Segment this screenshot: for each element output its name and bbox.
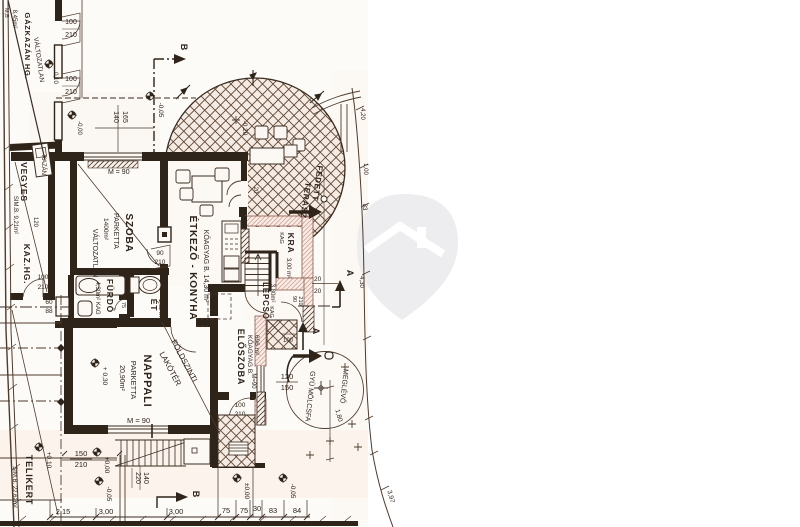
svg-text:150: 150 <box>281 383 294 392</box>
svg-text:+ 0,30: + 0,30 <box>101 367 108 386</box>
svg-text:VEGYES: VEGYES <box>19 162 29 202</box>
svg-text:1400m²: 1400m² <box>102 218 109 241</box>
svg-text:4,20: 4,20 <box>359 108 365 120</box>
svg-text:KAZÁN: KAZÁN <box>40 155 47 175</box>
svg-text:TELIKERT: TELIKERT <box>24 455 34 505</box>
svg-text:90: 90 <box>291 296 297 302</box>
svg-text:-0,20: -0,20 <box>241 121 248 136</box>
svg-text:120: 120 <box>32 217 38 228</box>
svg-text:GÁZKAZÁN HG.: GÁZKAZÁN HG. <box>23 12 32 79</box>
svg-text:100: 100 <box>283 338 294 344</box>
svg-text:±0,00: ±0,00 <box>243 483 250 500</box>
svg-text:PARKETTA: PARKETTA <box>129 361 138 399</box>
svg-text:75: 75 <box>240 506 248 515</box>
svg-text:+0,00: +0,00 <box>103 457 110 474</box>
svg-text:210: 210 <box>297 296 303 305</box>
svg-text:20: 20 <box>252 187 258 194</box>
svg-text:B: B <box>191 491 201 498</box>
svg-text:696 m²: 696 m² <box>253 335 260 356</box>
svg-text:210: 210 <box>65 32 77 39</box>
svg-text:100: 100 <box>235 402 246 409</box>
svg-text:A: A <box>345 270 355 277</box>
svg-text:M = 90: M = 90 <box>108 169 130 176</box>
svg-text:20: 20 <box>314 276 322 283</box>
svg-text:8,45m²: 8,45m² <box>11 10 17 29</box>
svg-text:20: 20 <box>314 288 322 295</box>
svg-text:SIM.B. 22,62m²: SIM.B. 22,62m² <box>11 466 17 508</box>
svg-text:120: 120 <box>281 372 294 381</box>
svg-text:M = 90: M = 90 <box>127 416 150 425</box>
svg-text:75: 75 <box>120 302 126 308</box>
svg-text:ELŐSZOBA: ELŐSZOBA <box>236 329 247 385</box>
svg-text:90: 90 <box>156 250 164 257</box>
svg-text:3,00: 3,00 <box>169 507 184 516</box>
svg-text:210: 210 <box>126 302 132 311</box>
svg-text:M,B: M,B <box>3 8 9 18</box>
svg-text:83: 83 <box>361 204 367 211</box>
svg-text:-0,00: -0,00 <box>76 121 82 135</box>
svg-text:60: 60 <box>45 299 53 306</box>
svg-text:VÁLTOZATLAN: VÁLTOZATLAN <box>91 229 100 278</box>
svg-text:ÉTKEZŐ - KONYHA: ÉTKEZŐ - KONYHA <box>187 216 200 321</box>
svg-text:210: 210 <box>75 460 88 469</box>
svg-text:4,30: 4,30 <box>358 276 364 288</box>
svg-text:SIM.B. 9,21m²: SIM.B. 9,21m² <box>12 196 18 234</box>
svg-text:KŐAGYAG B. 14,30 m²: KŐAGYAG B. 14,30 m² <box>202 230 211 303</box>
svg-text:1,00: 1,00 <box>362 163 368 175</box>
svg-text:A: A <box>311 328 321 335</box>
svg-text:210: 210 <box>65 89 77 96</box>
svg-text:20,90m²: 20,90m² <box>118 365 125 391</box>
svg-text:88: 88 <box>45 308 53 315</box>
svg-text:KAG: KAG <box>268 306 274 318</box>
svg-text:1,62 m²: 1,62 m² <box>157 299 163 319</box>
svg-text:30: 30 <box>253 504 261 513</box>
svg-text:KRA: KRA <box>286 233 296 254</box>
svg-text:2,15: 2,15 <box>56 507 71 516</box>
svg-text:0,10: 0,10 <box>52 72 58 84</box>
svg-text:3,00 m²: 3,00 m² <box>285 258 291 278</box>
svg-text:KAZ.HG.: KAZ.HG. <box>22 244 32 285</box>
svg-text:140: 140 <box>142 472 149 484</box>
svg-text:SZOBA: SZOBA <box>123 214 134 253</box>
svg-text:75: 75 <box>222 506 230 515</box>
svg-text:NAPPALI: NAPPALI <box>141 354 153 407</box>
svg-text:3,80m²: 3,80m² <box>269 284 275 303</box>
svg-text:B: B <box>179 44 189 51</box>
svg-text:PARKETTA: PARKETTA <box>112 213 119 249</box>
svg-text:210: 210 <box>38 284 49 291</box>
svg-text:M=90: M=90 <box>250 373 256 389</box>
svg-text:83: 83 <box>269 506 277 515</box>
svg-text:4,30m² KAG: 4,30m² KAG <box>94 281 100 314</box>
svg-text:KAG: KAG <box>278 232 284 244</box>
svg-text:3,00: 3,00 <box>99 507 114 516</box>
svg-text:165: 165 <box>121 111 128 123</box>
svg-text:84: 84 <box>293 506 301 515</box>
svg-text:-0,05: -0,05 <box>289 484 296 499</box>
svg-text:100: 100 <box>65 76 77 83</box>
svg-text:FÜRDŐ: FÜRDŐ <box>105 279 116 313</box>
svg-text:-0,05: -0,05 <box>105 487 112 502</box>
svg-text:-0,05: -0,05 <box>157 103 164 118</box>
svg-text:150: 150 <box>75 449 88 458</box>
svg-text:100: 100 <box>65 19 77 26</box>
